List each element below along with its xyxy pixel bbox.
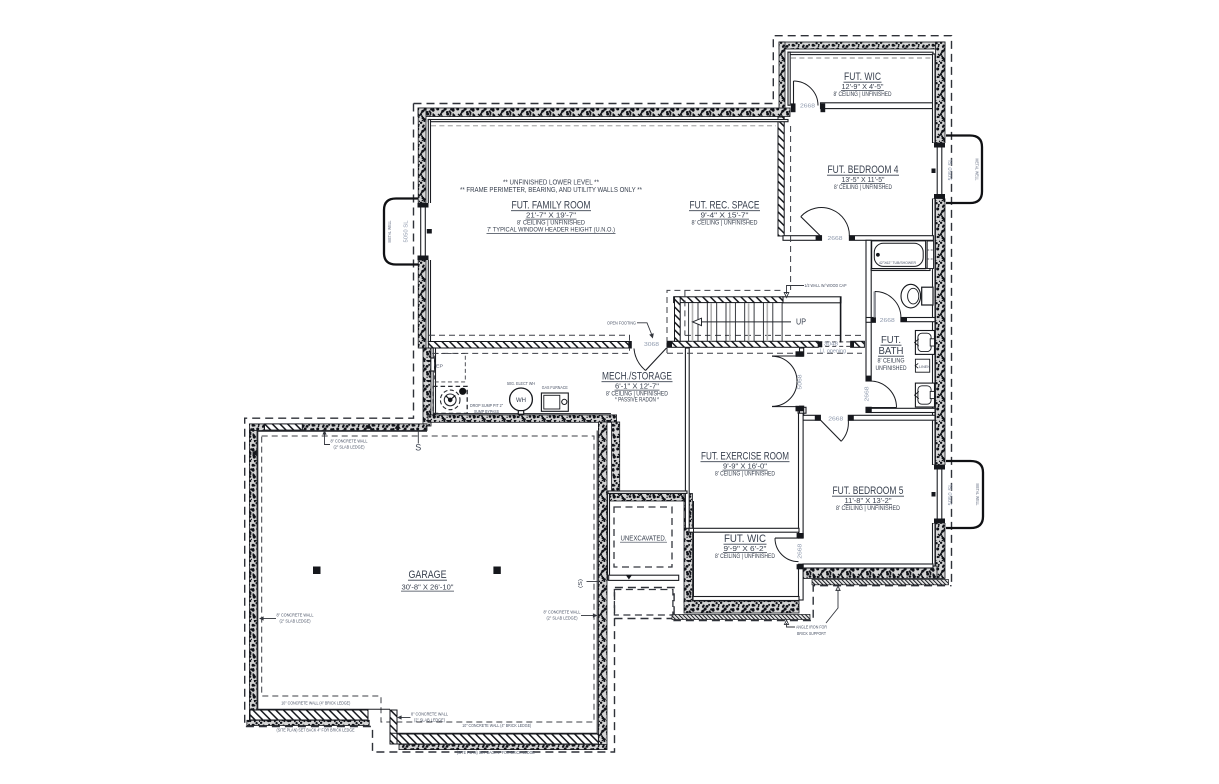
svg-text:8' CEILING | UNFINISHED: 8' CEILING | UNFINISHED xyxy=(836,505,900,512)
svg-text:BRICK SUPPORT: BRICK SUPPORT xyxy=(797,631,826,636)
svg-text:2668: 2668 xyxy=(880,318,895,324)
svg-text:5050 SL: 5050 SL xyxy=(948,484,954,506)
svg-text:8" CONCRETE WALL: 8" CONCRETE WALL xyxy=(277,613,314,618)
svg-text:30'-8" X 26'-10": 30'-8" X 26'-10" xyxy=(402,582,454,591)
svg-text:(2" SLAB LEDGE): (2" SLAB LEDGE) xyxy=(547,615,578,620)
svg-text:UNEXCAVATED.: UNEXCAVATED. xyxy=(621,534,667,543)
svg-text:8' CEILING | UNFINISHED: 8' CEILING | UNFINISHED xyxy=(715,470,775,477)
svg-text:METAL WELL: METAL WELL xyxy=(975,484,980,507)
svg-text:METAL WELL: METAL WELL xyxy=(387,220,392,243)
svg-text:UNFINISHED: UNFINISHED xyxy=(876,365,907,372)
svg-text:SUMP BYPASS: SUMP BYPASS xyxy=(474,409,499,414)
svg-text:8' CEILING | UNFINISHED: 8' CEILING | UNFINISHED xyxy=(834,91,892,98)
svg-text:(2" SLAB LEDGE): (2" SLAB LEDGE) xyxy=(334,444,365,449)
svg-text:3048: 3048 xyxy=(824,341,838,347)
svg-text:GAS FURNACE: GAS FURNACE xyxy=(542,385,568,390)
svg-text:EP: EP xyxy=(436,364,443,369)
svg-text:11'-8" X 13'-2": 11'-8" X 13'-2" xyxy=(845,496,892,505)
svg-text:(S): (S) xyxy=(578,579,584,588)
svg-text:42"X62" TUB/SHOWER: 42"X62" TUB/SHOWER xyxy=(879,260,916,265)
svg-text:(SITE PLAN) SET BACK 4" FOR BR: (SITE PLAN) SET BACK 4" FOR BRICK LEDGE xyxy=(277,727,355,732)
svg-text:(2" SLAB LEDGE): (2" SLAB LEDGE) xyxy=(414,717,445,722)
svg-text:9'-9" X 16'-0": 9'-9" X 16'-0" xyxy=(723,461,767,470)
svg-text:10" CONCRETE WALL (4" BRICK LE: 10" CONCRETE WALL (4" BRICK LEDGE) xyxy=(281,701,350,706)
svg-text:(SITE PLAN) SET BACK 4" FOR BR: (SITE PLAN) SET BACK 4" FOR BRICK LEDGE xyxy=(457,750,535,755)
svg-text:UP: UP xyxy=(796,318,806,327)
svg-text:3068: 3068 xyxy=(644,342,659,348)
svg-text:GARAGE: GARAGE xyxy=(409,569,447,581)
svg-text:DROP SUMP PIT 2": DROP SUMP PIT 2" xyxy=(470,403,503,408)
svg-text:S: S xyxy=(415,443,421,454)
svg-text:8' CEILING | UNFINISHED: 8' CEILING | UNFINISHED xyxy=(834,184,892,191)
svg-text:21'-7" X 19'-7": 21'-7" X 19'-7" xyxy=(526,210,576,219)
svg-text:2668: 2668 xyxy=(864,387,870,402)
svg-text:13'-5" X 11'-5": 13'-5" X 11'-5" xyxy=(842,175,885,184)
svg-text:OPEN FOOTING: OPEN FOOTING xyxy=(607,321,636,326)
svg-text:(2" SLAB LEDGE): (2" SLAB LEDGE) xyxy=(280,618,311,623)
svg-text:10" CONCRETE WALL (4" BRICK LE: 10" CONCRETE WALL (4" BRICK LEDGE) xyxy=(462,723,531,728)
svg-text:8" CONCRETE WALL: 8" CONCRETE WALL xyxy=(331,439,368,444)
svg-text:8' CEILING | UNFINISHED: 8' CEILING | UNFINISHED xyxy=(715,553,775,560)
svg-text:1/2 WALL W/ WOOD CAP: 1/2 WALL W/ WOOD CAP xyxy=(805,283,847,288)
svg-text:8" CONCRETE WALL: 8" CONCRETE WALL xyxy=(411,712,448,717)
svg-text:8' CEILING | UNFINISHED: 8' CEILING | UNFINISHED xyxy=(517,219,585,226)
svg-text:METAL WELL: METAL WELL xyxy=(975,159,980,182)
svg-text:l.l. opening: l.l. opening xyxy=(820,349,846,355)
svg-text:* PASSIVE RADON *: * PASSIVE RADON * xyxy=(615,396,659,403)
svg-text:BATH: BATH xyxy=(879,346,904,357)
svg-text:5050 SL: 5050 SL xyxy=(404,221,410,243)
svg-text:8' CEILING: 8' CEILING xyxy=(878,358,905,365)
svg-text:7' TYPICAL WINDOW HEADER HEIGH: 7' TYPICAL WINDOW HEADER HEIGHT (U.N.O.) xyxy=(487,227,615,234)
svg-text:2668: 2668 xyxy=(828,236,843,242)
svg-text:2668: 2668 xyxy=(798,544,804,559)
svg-text:** FRAME PERIMETER, BEARING, A: ** FRAME PERIMETER, BEARING, AND UTILITY… xyxy=(460,185,642,194)
svg-text:5050 SL: 5050 SL xyxy=(948,159,954,181)
svg-text:50G. ELECT WH: 50G. ELECT WH xyxy=(507,381,535,386)
svg-text:LINEN: LINEN xyxy=(919,365,930,369)
svg-text:2668: 2668 xyxy=(800,104,815,110)
svg-text:2668: 2668 xyxy=(828,417,843,423)
svg-text:8' CEILING | UNFINISHED: 8' CEILING | UNFINISHED xyxy=(692,219,758,226)
svg-text:WH: WH xyxy=(516,397,526,404)
svg-text:8" CONCRETE WALL: 8" CONCRETE WALL xyxy=(544,610,581,615)
svg-text:9'-4" X 15'-7": 9'-4" X 15'-7" xyxy=(701,210,750,219)
svg-text:6'-1" X 12'-7": 6'-1" X 12'-7" xyxy=(615,381,659,390)
svg-text:12'-9" X 4'-5": 12'-9" X 4'-5" xyxy=(842,82,884,91)
svg-text:5068: 5068 xyxy=(797,375,803,390)
svg-text:ANGLE IRON FOR: ANGLE IRON FOR xyxy=(796,625,827,630)
svg-text:FUT.: FUT. xyxy=(881,335,901,346)
svg-text:9'-9" X 6'-2": 9'-9" X 6'-2" xyxy=(724,544,768,553)
